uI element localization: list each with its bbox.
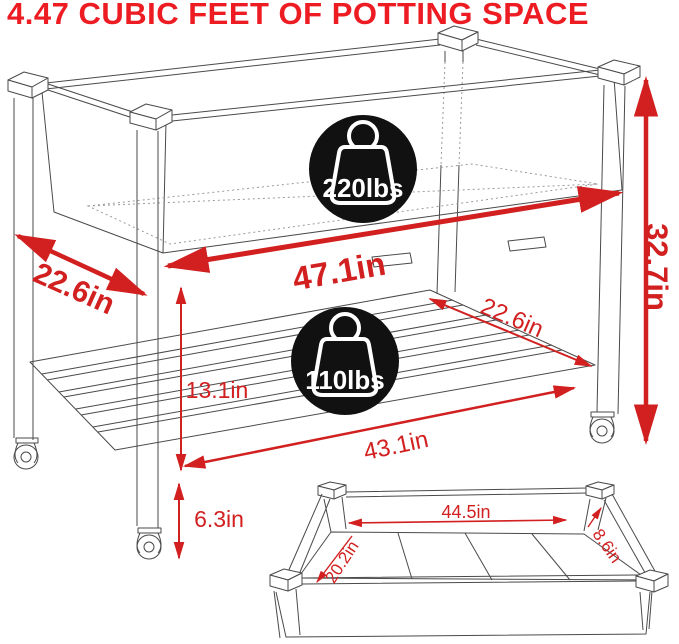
dim-label-shelf-width: 43.1in <box>361 426 431 466</box>
dim-label-width-top: 47.1in <box>290 245 389 298</box>
dim-label-shelf-gap: 13.1in <box>186 377 249 403</box>
caster-front-left <box>137 528 161 559</box>
product-dimension-diagram: 4.47 CUBIC FEET OF POTTING SPACE <box>0 0 679 644</box>
dim-label-inner-depth: 8.6in <box>589 525 626 566</box>
top-capacity-badge: 220lbs <box>309 115 417 223</box>
dim-label-ground-clearance: 6.3in <box>194 506 244 532</box>
caster-front-right <box>590 412 614 443</box>
dim-label-height-total: 32.7in <box>640 223 675 311</box>
rear-right-leg <box>437 51 463 294</box>
top-capacity-label: 220lbs <box>323 173 404 203</box>
dim-label-depth-top: 22.6in <box>28 257 119 322</box>
shelf-capacity-label: 110lbs <box>305 365 385 395</box>
dim-label-inner-length: 44.5in <box>441 502 490 522</box>
dim-label-inner-width: 20.2in <box>321 537 362 586</box>
shelf-capacity-badge: 110lbs <box>291 307 399 415</box>
garden-bed-line-drawing: 22.6in 47.1in 32.7in 13.1in 22.6in 43.1i… <box>0 0 679 644</box>
caster-rear-left <box>14 438 38 469</box>
